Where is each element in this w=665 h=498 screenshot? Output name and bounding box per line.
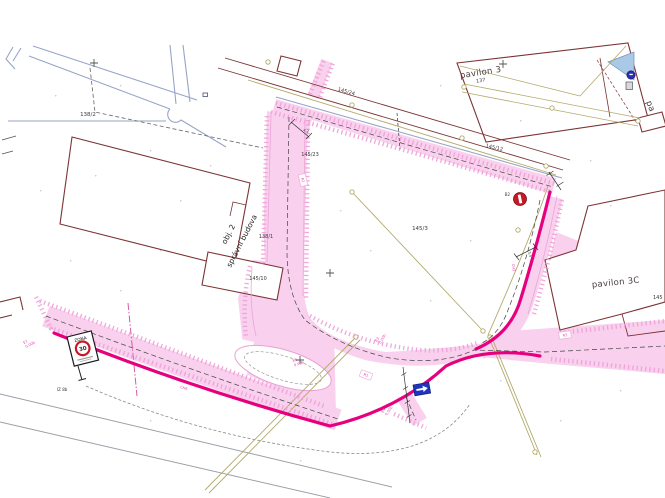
site-plan-canvas: ZONA 30 IZ 8b B2 R1 R2 — [0, 0, 665, 498]
parcel-label-145-10: 145/10 — [249, 276, 267, 282]
parcel-label-145-partial: 145 — [653, 295, 663, 301]
one-way-sign — [413, 382, 431, 396]
parcel-label-145-23: 145/23 — [301, 152, 319, 158]
site-plan: ZONA 30 IZ 8b B2 R1 R2 — [0, 0, 665, 498]
parcel-label-145-3: 145/3 — [412, 226, 428, 232]
parcel-label-138-1: 138/1 — [259, 234, 273, 240]
no-entry-code: B2 — [505, 192, 511, 197]
badge-r3-label: R3 — [562, 333, 567, 338]
parcel-label-138-2: 138/2 — [80, 112, 96, 118]
gray-box-icon — [626, 82, 633, 90]
blue-marker-glyph — [629, 74, 632, 75]
zone-sign-code: IZ 8b — [57, 387, 68, 392]
